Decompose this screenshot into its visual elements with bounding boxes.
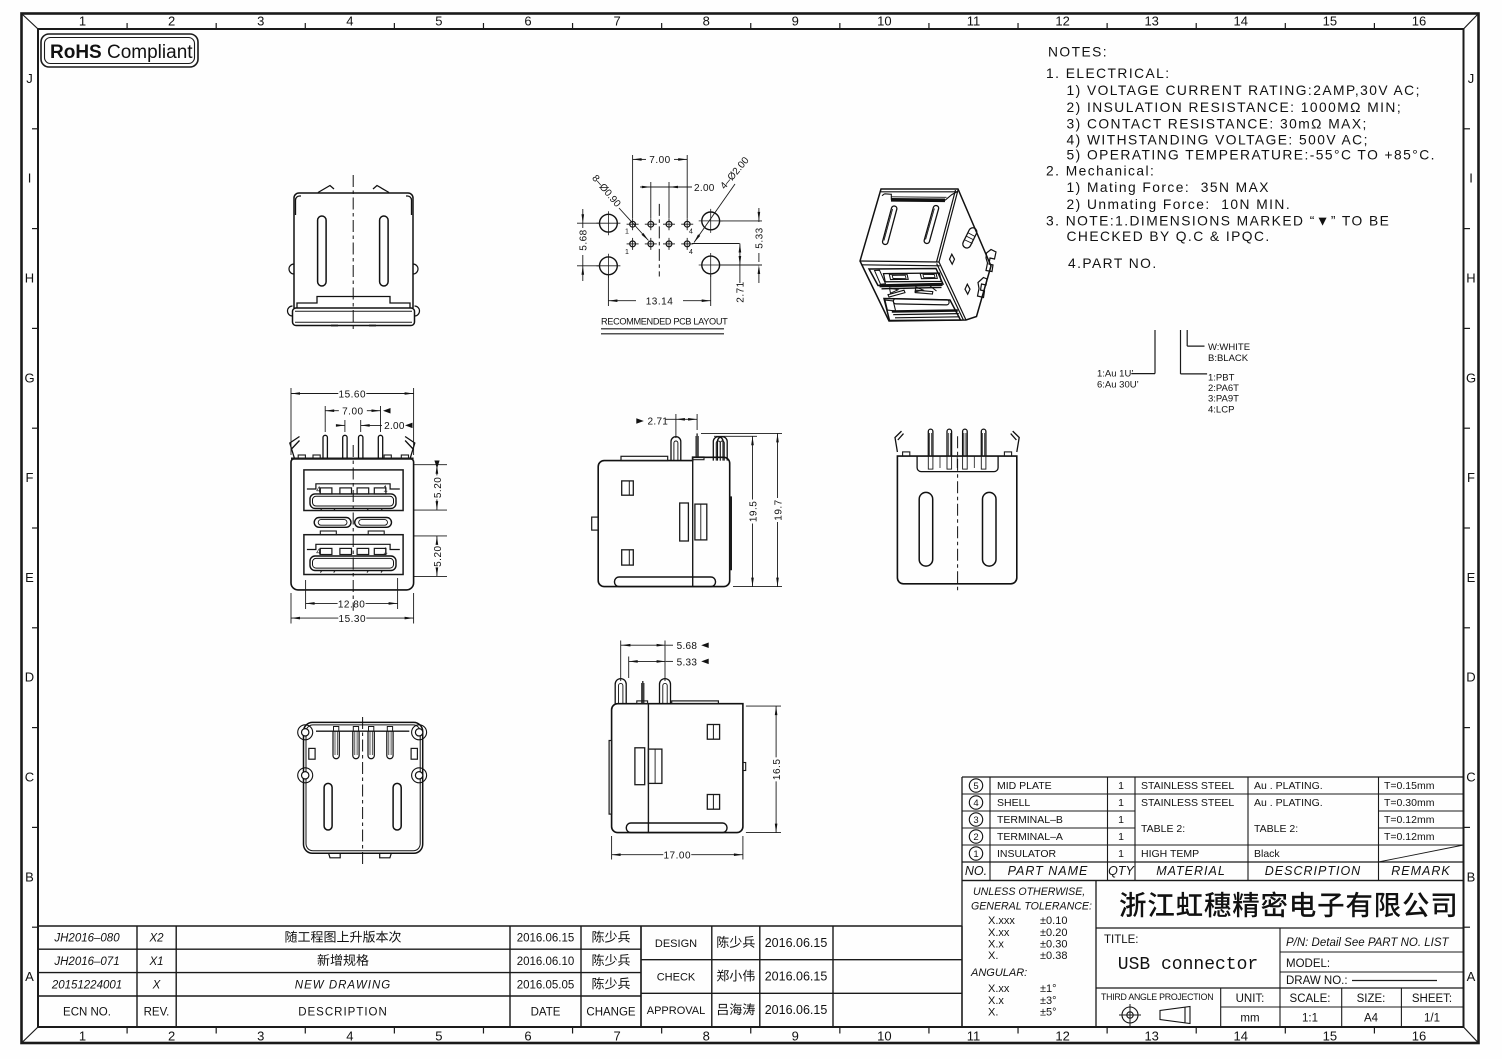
svg-text:16: 16 — [1412, 1029, 1426, 1044]
svg-text:17.00: 17.00 — [663, 851, 691, 862]
svg-text:1) VOLTAGE CURRENT RATING:2AMP: 1) VOLTAGE CURRENT RATING:2AMP,30V AC; — [1067, 83, 1421, 98]
svg-text:Black: Black — [1254, 848, 1280, 860]
svg-text:TERMINAL–B: TERMINAL–B — [997, 814, 1063, 826]
svg-text:±0.38: ±0.38 — [1040, 950, 1067, 962]
svg-text:C: C — [25, 770, 34, 785]
svg-text:12: 12 — [1055, 14, 1069, 29]
svg-text:Au . PLATING.: Au . PLATING. — [1254, 797, 1323, 809]
svg-text:3: 3 — [257, 14, 264, 29]
svg-text:12.80: 12.80 — [338, 599, 366, 610]
svg-text:5.20: 5.20 — [433, 545, 444, 566]
svg-text:15: 15 — [1323, 1029, 1337, 1044]
svg-text:APPROVAL: APPROVAL — [647, 1005, 706, 1017]
svg-text:RoHS: RoHS — [50, 42, 102, 63]
svg-text:2: 2 — [973, 832, 978, 843]
svg-text:±1°: ±1° — [1040, 983, 1057, 995]
svg-text:2.71: 2.71 — [648, 417, 669, 428]
svg-text:7.00: 7.00 — [342, 407, 363, 418]
svg-text:DRAW NO.:: DRAW NO.: — [1286, 975, 1348, 987]
svg-text:F: F — [26, 470, 34, 485]
svg-text:W:WHITE: W:WHITE — [1208, 342, 1250, 353]
svg-text:3) CONTACT RESISTANCE: 30mΩ MA: 3) CONTACT RESISTANCE: 30mΩ MAX; — [1067, 117, 1368, 132]
svg-text:2016.06.15: 2016.06.15 — [765, 1003, 828, 1017]
svg-text:MID PLATE: MID PLATE — [997, 780, 1052, 792]
svg-text:NEW DRAWING: NEW DRAWING — [295, 979, 391, 991]
svg-text:E: E — [1467, 570, 1476, 585]
svg-text:3: 3 — [973, 815, 978, 826]
svg-text:B: B — [25, 869, 34, 884]
svg-text:4: 4 — [689, 249, 693, 256]
svg-text:MATERIAL: MATERIAL — [1156, 864, 1226, 878]
svg-text:5.68: 5.68 — [677, 641, 698, 652]
svg-text:2:PA6T: 2:PA6T — [1208, 383, 1239, 394]
svg-text:4: 4 — [346, 1029, 353, 1044]
svg-text:19.5: 19.5 — [749, 501, 760, 522]
svg-text:1: 1 — [79, 1029, 86, 1044]
svg-text:UNIT:: UNIT: — [1236, 993, 1265, 1005]
svg-text:1: 1 — [383, 484, 388, 493]
svg-text:±0.10: ±0.10 — [1040, 915, 1067, 927]
svg-text:X.x: X.x — [988, 995, 1004, 1007]
svg-text:ANGULAR:: ANGULAR: — [970, 967, 1027, 979]
svg-text:I: I — [1469, 171, 1473, 186]
svg-text:CHECK: CHECK — [657, 972, 696, 984]
svg-text:8: 8 — [703, 14, 710, 29]
svg-text:5) OPERATING TEMPERATURE:-55°C: 5) OPERATING TEMPERATURE:-55°C TO +85°C. — [1067, 148, 1436, 163]
svg-text:4: 4 — [346, 14, 353, 29]
svg-text:Au . PLATING.: Au . PLATING. — [1254, 780, 1323, 792]
svg-text:X2: X2 — [148, 933, 164, 945]
svg-text:GENERAL TOLERANCE:: GENERAL TOLERANCE: — [971, 901, 1092, 913]
svg-text:SCALE:: SCALE: — [1290, 993, 1331, 1005]
svg-text:2. Mechanical:: 2. Mechanical: — [1046, 164, 1155, 179]
svg-text:5: 5 — [973, 781, 978, 792]
svg-text:4) WITHSTANDING VOLTAGE: 500V: 4) WITHSTANDING VOLTAGE: 500V AC; — [1067, 133, 1369, 148]
svg-text:8: 8 — [703, 1029, 710, 1044]
svg-text:2016.06.15: 2016.06.15 — [765, 970, 828, 984]
svg-text:19.7: 19.7 — [774, 499, 785, 520]
svg-text:4.PART NO.: 4.PART NO. — [1068, 256, 1158, 271]
svg-text:A: A — [1467, 969, 1476, 984]
svg-text:Compliant: Compliant — [107, 42, 193, 63]
svg-text:9: 9 — [792, 1029, 799, 1044]
svg-text:1: 1 — [1118, 831, 1124, 843]
svg-text:T=0.15mm: T=0.15mm — [1384, 780, 1435, 792]
svg-text:10: 10 — [877, 14, 891, 29]
svg-text:RECOMMENDED PCB LAYOUT: RECOMMENDED PCB LAYOUT — [601, 317, 728, 327]
svg-text:5.33: 5.33 — [677, 657, 698, 668]
svg-text:±0.30: ±0.30 — [1040, 939, 1067, 951]
svg-text:TABLE 2:: TABLE 2: — [1141, 823, 1185, 835]
svg-text:INSULATOR: INSULATOR — [997, 848, 1057, 860]
svg-text:DATE: DATE — [531, 1007, 561, 1019]
svg-text:5: 5 — [435, 1029, 442, 1044]
svg-text:1: 1 — [1118, 814, 1124, 826]
svg-text:DESIGN: DESIGN — [655, 938, 697, 950]
svg-text:1: 1 — [1118, 848, 1124, 860]
svg-text:T=0.12mm: T=0.12mm — [1384, 814, 1435, 826]
svg-text:P/N: Detail See PART NO. LIST: P/N: Detail See PART NO. LIST — [1286, 937, 1450, 949]
svg-text:2) Unmating Force: 10N MIN.: 2) Unmating Force: 10N MIN. — [1067, 197, 1292, 212]
svg-text:6:Au 30U’: 6:Au 30U’ — [1097, 380, 1139, 391]
svg-text:B:BLACK: B:BLACK — [1208, 353, 1249, 364]
svg-text:X.xx: X.xx — [988, 927, 1010, 939]
svg-text:15: 15 — [1323, 14, 1337, 29]
svg-text:1:1: 1:1 — [1302, 1013, 1318, 1025]
svg-text:TITLE:: TITLE: — [1104, 934, 1139, 946]
svg-text:D: D — [1466, 670, 1475, 685]
svg-text:SHELL: SHELL — [997, 797, 1030, 809]
svg-text:2016.06.10: 2016.06.10 — [517, 956, 575, 968]
svg-text:2: 2 — [168, 1029, 175, 1044]
svg-text:5: 5 — [435, 14, 442, 29]
svg-text:6: 6 — [524, 14, 531, 29]
svg-text:TERMINAL–A: TERMINAL–A — [997, 831, 1063, 843]
svg-text:16: 16 — [1412, 14, 1426, 29]
svg-text:4: 4 — [316, 547, 321, 556]
svg-text:±3°: ±3° — [1040, 995, 1057, 1007]
svg-text:G: G — [1466, 370, 1476, 385]
svg-text:T=0.12mm: T=0.12mm — [1384, 831, 1435, 843]
svg-text:1. ELECTRICAL:: 1. ELECTRICAL: — [1046, 66, 1171, 81]
svg-text:7: 7 — [613, 1029, 620, 1044]
svg-text:1: 1 — [625, 229, 629, 236]
svg-text:11: 11 — [967, 14, 981, 29]
svg-text:ECN NO.: ECN NO. — [63, 1007, 111, 1019]
svg-text:3. NOTE:1.DIMENSIONS MARKED “▼: 3. NOTE:1.DIMENSIONS MARKED “▼” TO BE — [1046, 214, 1390, 229]
svg-text:15.30: 15.30 — [339, 614, 367, 625]
svg-text:mm: mm — [1240, 1013, 1259, 1025]
svg-text:14: 14 — [1234, 1029, 1248, 1044]
svg-text:STAINLESS STEEL: STAINLESS STEEL — [1141, 797, 1234, 809]
svg-text:2.00: 2.00 — [384, 421, 405, 432]
svg-text:1: 1 — [1118, 797, 1124, 809]
svg-text:1: 1 — [79, 14, 86, 29]
svg-text:1:Au 1U’: 1:Au 1U’ — [1097, 369, 1133, 380]
svg-text:1: 1 — [625, 249, 629, 256]
svg-text:C: C — [1466, 770, 1475, 785]
svg-text:H: H — [25, 271, 34, 286]
svg-text:1: 1 — [383, 546, 388, 555]
svg-text:20151224001: 20151224001 — [51, 979, 122, 991]
svg-text:X.: X. — [988, 950, 998, 962]
svg-text:H: H — [1466, 271, 1475, 286]
svg-text:SHEET:: SHEET: — [1412, 993, 1452, 1005]
svg-text:X.xxx: X.xxx — [988, 915, 1015, 927]
svg-text:SIZE:: SIZE: — [1357, 993, 1386, 1005]
svg-text:I: I — [28, 171, 32, 186]
svg-text:X.xx: X.xx — [988, 983, 1010, 995]
svg-text:REV.: REV. — [144, 1007, 170, 1019]
svg-text:4: 4 — [689, 229, 693, 236]
svg-text:7.00: 7.00 — [649, 155, 670, 166]
svg-text:1: 1 — [1118, 780, 1124, 792]
svg-text:1: 1 — [973, 849, 978, 860]
svg-text:3: 3 — [257, 1029, 264, 1044]
svg-text:5.20: 5.20 — [433, 477, 444, 498]
svg-text:5.68: 5.68 — [579, 229, 590, 250]
svg-text:2: 2 — [168, 14, 175, 29]
svg-text:1) Mating Force: 35N MAX: 1) Mating Force: 35N MAX — [1067, 180, 1270, 195]
svg-text:6: 6 — [524, 1029, 531, 1044]
svg-text:±0.20: ±0.20 — [1040, 927, 1067, 939]
svg-text:X.: X. — [988, 1007, 998, 1019]
svg-text:15.60: 15.60 — [339, 390, 367, 401]
svg-text:X: X — [152, 979, 162, 991]
svg-text:4: 4 — [316, 485, 321, 494]
svg-text:14: 14 — [1234, 14, 1248, 29]
svg-text:±5°: ±5° — [1040, 1007, 1057, 1019]
svg-text:1:PBT: 1:PBT — [1208, 373, 1235, 384]
svg-text:16.5: 16.5 — [772, 759, 783, 780]
svg-text:TABLE 2:: TABLE 2: — [1254, 823, 1298, 835]
svg-text:13.14: 13.14 — [646, 297, 674, 308]
svg-text:G: G — [24, 370, 34, 385]
svg-text:2.00: 2.00 — [694, 183, 715, 194]
svg-text:4: 4 — [973, 798, 978, 809]
svg-text:DESCRIPTION: DESCRIPTION — [1265, 864, 1361, 878]
svg-text:CHANGE: CHANGE — [586, 1007, 636, 1019]
svg-text:CHECKED BY Q.C & IPQC.: CHECKED BY Q.C & IPQC. — [1067, 229, 1271, 244]
svg-text:HIGH TEMP: HIGH TEMP — [1141, 848, 1199, 860]
svg-text:PART NAME: PART NAME — [1008, 864, 1089, 878]
svg-text:2) INSULATION RESISTANCE: 1000: 2) INSULATION RESISTANCE: 1000MΩ MIN; — [1067, 100, 1403, 115]
svg-text:12: 12 — [1055, 1029, 1069, 1044]
svg-text:USB connector: USB connector — [1118, 955, 1258, 975]
svg-text:STAINLESS STEEL: STAINLESS STEEL — [1141, 780, 1234, 792]
svg-text:13: 13 — [1144, 14, 1158, 29]
svg-text:X1: X1 — [148, 956, 163, 968]
svg-text:D: D — [25, 670, 34, 685]
svg-text:2016.06.15: 2016.06.15 — [517, 933, 575, 945]
svg-text:JH2016–071: JH2016–071 — [53, 956, 119, 968]
svg-text:E: E — [25, 570, 34, 585]
svg-text:B: B — [1467, 869, 1476, 884]
svg-text:MODEL:: MODEL: — [1286, 958, 1330, 970]
svg-text:2016.05.05: 2016.05.05 — [517, 979, 575, 991]
svg-text:3:PA9T: 3:PA9T — [1208, 394, 1239, 405]
svg-text:NO.: NO. — [965, 864, 987, 878]
svg-text:2.71: 2.71 — [736, 281, 747, 302]
svg-text:F: F — [1467, 470, 1475, 485]
svg-text:5.33: 5.33 — [755, 227, 766, 248]
svg-text:A: A — [25, 969, 34, 984]
svg-text:T=0.30mm: T=0.30mm — [1384, 797, 1435, 809]
svg-text:NOTES:: NOTES: — [1048, 45, 1108, 60]
svg-text:9: 9 — [792, 14, 799, 29]
svg-text:UNLESS OTHERWISE,: UNLESS OTHERWISE, — [973, 886, 1085, 898]
svg-text:DESCRIPTION: DESCRIPTION — [298, 1007, 388, 1019]
svg-text:REMARK: REMARK — [1391, 864, 1450, 878]
svg-text:7: 7 — [613, 14, 620, 29]
svg-text:10: 10 — [877, 1029, 891, 1044]
svg-text:QTY: QTY — [1108, 864, 1135, 878]
svg-text:13: 13 — [1144, 1029, 1158, 1044]
svg-text:THIRD ANGLE PROJECTION: THIRD ANGLE PROJECTION — [1101, 992, 1213, 1002]
svg-text:2016.06.15: 2016.06.15 — [765, 936, 828, 950]
svg-text:JH2016–080: JH2016–080 — [53, 933, 120, 945]
svg-text:J: J — [1468, 71, 1475, 86]
svg-text:J: J — [26, 71, 33, 86]
svg-text:1/1: 1/1 — [1424, 1013, 1440, 1025]
svg-text:4:LCP: 4:LCP — [1208, 405, 1234, 416]
svg-text:11: 11 — [967, 1029, 981, 1044]
svg-text:X.x: X.x — [988, 939, 1004, 951]
svg-text:A4: A4 — [1364, 1013, 1379, 1025]
